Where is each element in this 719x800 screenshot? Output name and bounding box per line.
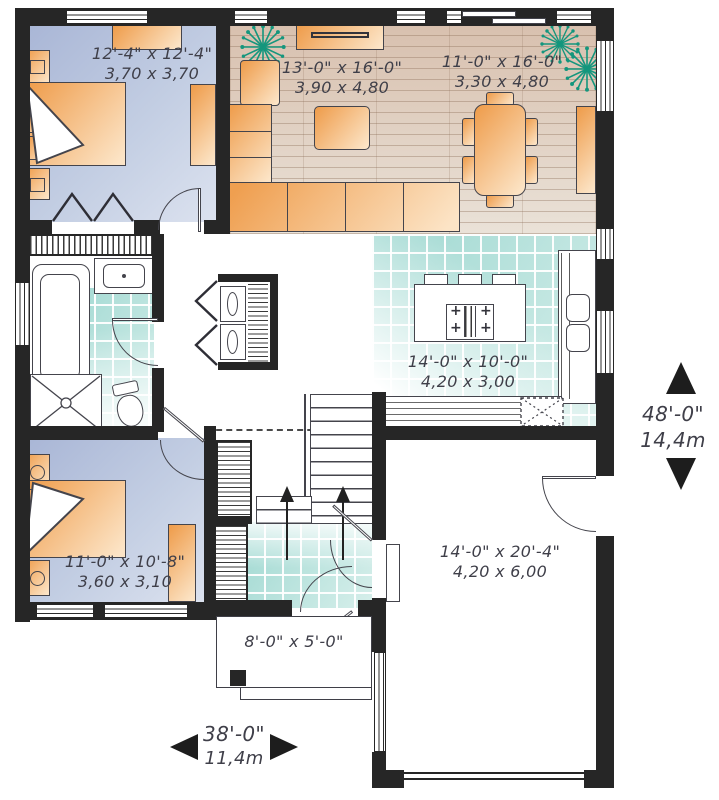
sofa-cushion-line <box>229 131 271 132</box>
dishwasher <box>520 397 564 427</box>
tall-dresser <box>190 84 216 166</box>
wall-bath-right <box>152 368 164 432</box>
kitchen-label: 14'-0" x 10'-0" 4,20 x 3,00 <box>398 352 538 391</box>
closet-rod <box>30 234 152 256</box>
tv-console <box>296 24 384 50</box>
bedroom2-dim-metric: 3,60 x 3,10 <box>55 572 195 592</box>
width-dim-imperial: 38'-0" <box>200 722 268 746</box>
bedroom1-dim-metric: 3,70 x 3,70 <box>82 64 222 84</box>
sideboard <box>576 106 596 194</box>
dining-chair <box>524 156 538 184</box>
bedroom1-dim-imperial: 12'-4" x 12'-4" <box>82 44 222 64</box>
bed-double <box>22 480 126 558</box>
wall-garage-bottom <box>584 770 614 788</box>
bedroom1-label: 12'-4" x 12'-4" 3,70 x 3,70 <box>82 44 222 83</box>
depth-dim-metric: 14,4m <box>628 428 718 452</box>
coffee-table <box>314 106 370 150</box>
wall-garage-bottom <box>372 770 404 788</box>
toilet-bowl <box>114 393 146 430</box>
tv-screen <box>311 32 369 38</box>
dimension-arrow-right-icon <box>270 734 298 760</box>
bathtub <box>32 264 90 392</box>
window <box>104 604 188 618</box>
wall-bedroom2-right <box>204 426 216 620</box>
garage-dim-metric: 4,20 x 6,00 <box>430 562 570 582</box>
bedroom2-dim-imperial: 11'-0" x 10'-8" <box>55 552 195 572</box>
bathtub-inner <box>40 274 80 380</box>
vanity-drain <box>122 274 126 278</box>
bifold-doors-icon <box>192 280 218 366</box>
garage-step <box>386 544 400 602</box>
garage-side-door-swing <box>542 478 596 532</box>
living-dim-metric: 3,90 x 4,80 <box>272 78 412 98</box>
living-dim-imperial: 13'-0" x 16'-0" <box>272 58 412 78</box>
window <box>446 10 462 24</box>
patio-door-panel <box>492 18 546 24</box>
dimension-arrow-up-icon <box>666 362 696 394</box>
window <box>556 10 592 24</box>
living-label: 13'-0" x 16'-0" 3,90 x 4,80 <box>272 58 412 97</box>
bifold-doors-icon <box>52 192 134 222</box>
window <box>374 652 386 752</box>
kitchen-sink <box>566 294 590 322</box>
wall-bath-right <box>152 234 164 322</box>
window <box>396 10 426 24</box>
cooktop: + + + + <box>446 304 494 340</box>
window <box>234 10 268 24</box>
kitchen-dim-imperial: 14'-0" x 10'-0" <box>398 352 538 372</box>
burner-icon: + <box>450 303 462 319</box>
vanity <box>94 258 154 294</box>
burner-icon: + <box>480 303 492 319</box>
porch-label: 8'-0" x 5'-0" <box>234 632 354 652</box>
kitchen-dim-metric: 4,20 x 3,00 <box>398 372 538 392</box>
window <box>15 282 30 346</box>
wall-right <box>596 8 614 788</box>
burner-icon: + <box>480 320 492 336</box>
closet-divider-wall <box>214 518 252 524</box>
shower-x-icon <box>30 374 102 432</box>
bed-fold-icon <box>25 83 95 167</box>
window <box>596 40 614 112</box>
bed-fold-icon <box>23 481 93 559</box>
door-leaf <box>198 188 201 232</box>
nightstand-detail <box>30 60 45 74</box>
stair-arrow-stem <box>286 500 288 560</box>
washer <box>220 286 246 322</box>
wall-bedroom1-bottom <box>15 220 52 234</box>
laundry-wall-right <box>270 274 278 370</box>
garage-dim-imperial: 14'-0" x 20'-4" <box>430 542 570 562</box>
porch-step <box>240 688 372 700</box>
laundry-wall-bottom <box>218 362 278 370</box>
sofa-cushion-line <box>287 183 288 231</box>
dining-label: 11'-0" x 16'-0" 3,30 x 4,80 <box>432 52 572 91</box>
lamp-icon <box>30 571 45 586</box>
wall-bedroom2-top <box>15 426 158 440</box>
bed-double <box>24 82 126 166</box>
wall-garage-left <box>372 392 386 540</box>
wall-entry-bottom <box>216 600 292 616</box>
patio-door-panel <box>462 11 516 17</box>
wall-bedroom1-living <box>216 8 230 234</box>
sofa-cushion-line <box>403 183 404 231</box>
sofa-section-bottom <box>228 182 460 232</box>
dryer <box>220 324 246 360</box>
window <box>36 604 94 618</box>
dimension-arrow-left-icon <box>170 734 198 760</box>
up-arrow-icon <box>280 486 294 502</box>
bedroom2-label: 11'-0" x 10'-8" 3,60 x 3,10 <box>55 552 195 591</box>
cooktop-grill <box>464 306 476 337</box>
burner-icon: + <box>450 320 462 336</box>
dining-table <box>474 104 526 196</box>
garage-side-door-leaf <box>542 476 596 479</box>
sofa-section-vertical <box>228 104 272 184</box>
door-leaf <box>112 318 158 321</box>
entry-closet <box>214 524 248 602</box>
hall-closet <box>216 440 252 518</box>
wall-bedroom1-bottom <box>134 220 160 234</box>
dimension-arrow-down-icon <box>666 458 696 490</box>
washer-door <box>227 292 238 316</box>
sofa-cushion-line <box>345 183 346 231</box>
dining-dim-metric: 3,30 x 4,80 <box>432 72 572 92</box>
sofa-cushion-line <box>229 157 271 158</box>
dining-chair <box>524 118 538 146</box>
garage-label: 14'-0" x 20'-4" 4,20 x 6,00 <box>430 542 570 581</box>
width-dim-metric: 11,4m <box>200 748 268 770</box>
dryer-door <box>227 330 238 354</box>
garage-door <box>404 772 584 780</box>
depth-dim-imperial: 48'-0" <box>628 402 718 426</box>
floor-plan: + + + + <box>0 0 719 800</box>
wall-bedroom1-bottom <box>204 220 216 234</box>
garage-side-door-opening <box>596 476 614 536</box>
nightstand-detail <box>30 178 45 192</box>
window <box>596 310 614 374</box>
window <box>596 228 614 260</box>
porch-post <box>230 670 246 686</box>
kitchen-sink <box>566 324 590 352</box>
up-arrow-icon <box>336 486 350 502</box>
dining-chair <box>486 194 514 208</box>
wall-garage-left <box>372 598 386 652</box>
porch-dim-imperial: 8'-0" x 5'-0" <box>234 632 354 652</box>
window <box>66 10 148 24</box>
lamp-icon <box>30 465 45 480</box>
wall-kitchen-garage <box>372 426 614 440</box>
laundry-wall-top <box>218 274 278 282</box>
door-leaf <box>163 407 204 442</box>
dining-dim-imperial: 11'-0" x 16'-0" <box>432 52 572 72</box>
laundry-shelves <box>248 284 268 362</box>
